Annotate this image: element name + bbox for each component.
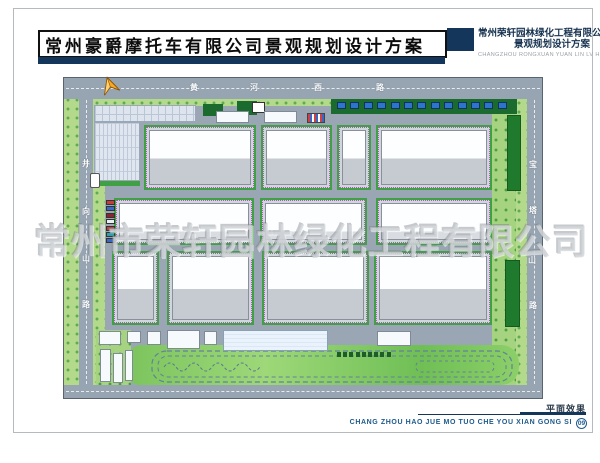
road-label-char: 黄 <box>190 84 198 92</box>
canopy-panel <box>431 102 440 109</box>
canopy-panel <box>498 102 507 109</box>
canopy-panel <box>471 102 480 109</box>
hedge-square <box>380 352 384 357</box>
hedge-square <box>368 352 372 357</box>
canopy-panel <box>484 102 493 109</box>
road-label-char: 河 <box>250 84 258 92</box>
canopy-panel <box>404 102 413 109</box>
long-canopy-building <box>223 330 328 351</box>
road-label-char: 路 <box>376 84 384 92</box>
service-building <box>377 331 411 346</box>
watermark: 常州市荣轩园林绿化工程有限公司 <box>34 213 566 265</box>
road-label-char: 路 <box>82 301 90 309</box>
canopy-panel <box>444 102 453 109</box>
canopy-panel <box>350 102 359 109</box>
road-label-char: 井 <box>82 160 90 168</box>
service-building <box>100 349 111 382</box>
company-subtitle: 景观规划设计方案 <box>478 39 590 50</box>
company-name-pinyin: CHANGZHOU RONGXUAN YUAN LIN LV HUA <box>478 52 590 58</box>
hedge-square <box>374 352 378 357</box>
hedge-square <box>387 352 391 357</box>
hedge-square <box>349 352 353 357</box>
canopy-panel <box>364 102 373 109</box>
page-number-badge: 09 <box>576 418 587 429</box>
road-label-char: 宝 <box>529 161 537 169</box>
canopy-panel <box>337 102 346 109</box>
service-building <box>127 331 141 343</box>
service-building <box>125 350 133 381</box>
title-box: 常州豪爵摩托车有限公司景观规划设计方案 <box>38 30 447 58</box>
page-title: 常州豪爵摩托车有限公司景观规划设计方案 <box>40 32 425 57</box>
canopy-panel <box>417 102 426 109</box>
parked-car <box>106 206 115 211</box>
north-arrow-icon <box>98 76 122 96</box>
title-accent-bar <box>38 57 445 64</box>
footer-company-pinyin: CHANG ZHOU HAO JUE MO TUO CHE YOU XIAN G… <box>350 419 572 426</box>
company-block: 常州荣轩园林绿化工程有限公司 景观规划设计方案 CHANGZHOU RONGXU… <box>478 28 590 58</box>
canopy-panel <box>391 102 400 109</box>
hedge-square <box>343 352 347 357</box>
service-building <box>167 330 200 349</box>
canopy-panel <box>377 102 386 109</box>
footer-divider-accent <box>520 412 586 415</box>
bus-vehicle <box>90 173 100 188</box>
hedge-square <box>337 352 341 357</box>
service-building <box>147 331 161 345</box>
service-building <box>113 353 123 383</box>
canopy-panel <box>458 102 467 109</box>
service-building <box>204 331 217 345</box>
header-accent-square <box>447 28 474 51</box>
hedge-square <box>362 352 366 357</box>
company-name: 常州荣轩园林绿化工程有限公司 <box>478 28 590 39</box>
parked-car <box>106 200 115 205</box>
service-building <box>99 331 121 345</box>
road-label-char: 路 <box>529 302 537 310</box>
drawing-sheet: 常州豪爵摩托车有限公司景观规划设计方案 常州荣轩园林绿化工程有限公司 景观规划设… <box>0 0 600 463</box>
hedge-square <box>356 352 360 357</box>
road-label-char: 西 <box>314 84 322 92</box>
